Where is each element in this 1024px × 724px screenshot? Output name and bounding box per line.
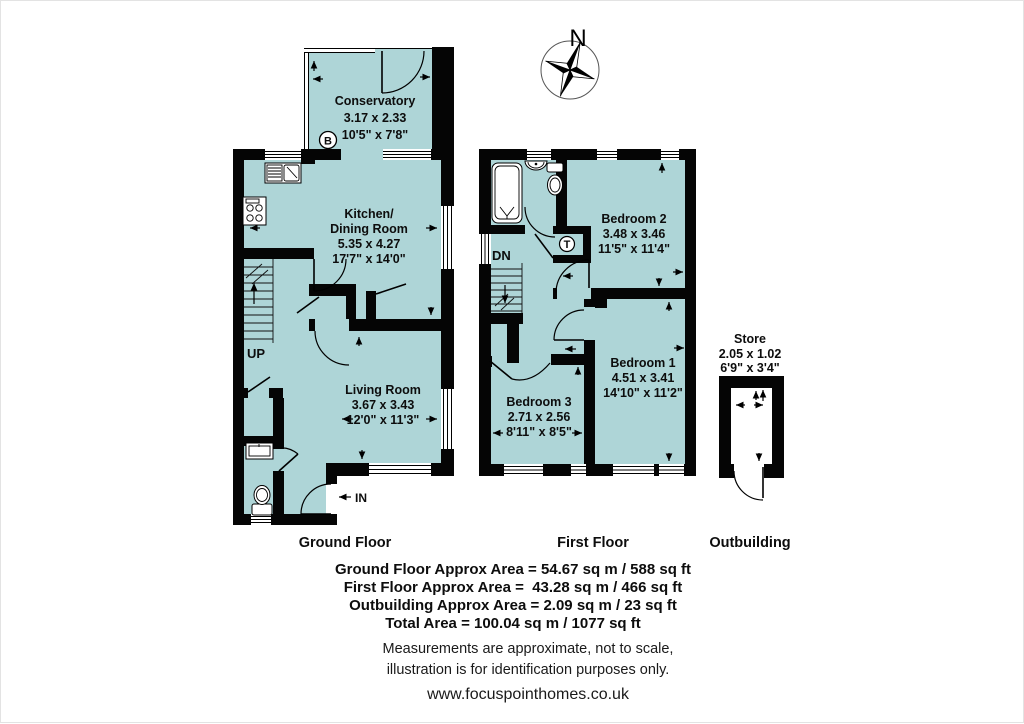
- bedroom2-imperial: 11'5" x 11'4": [598, 242, 670, 256]
- hob: [243, 197, 266, 225]
- living-imperial: 12'0" x 11'3": [347, 413, 420, 427]
- kitchen-name-2: Dining Room: [330, 222, 408, 236]
- kitchen-metric: 5.35 x 4.27: [338, 237, 401, 251]
- disclaimer-line-2: illustration is for identification purpo…: [387, 662, 670, 678]
- dn-label: DN: [492, 248, 511, 263]
- kitchen-sink: [265, 163, 301, 183]
- bathtub: [492, 163, 522, 223]
- boiler-icon: B: [320, 132, 337, 149]
- bedroom2-metric: 3.48 x 3.46: [603, 227, 666, 241]
- area-total: Total Area = 100.04 sq m / 1077 sq ft: [385, 615, 641, 632]
- tank-icon: T: [560, 237, 575, 252]
- conservatory-metric: 3.17 x 2.33: [344, 111, 407, 125]
- bedroom1-name: Bedroom 1: [610, 356, 675, 370]
- compass-icon: N: [536, 25, 605, 105]
- disclaimer: Measurements are approximate, not to sca…: [383, 641, 674, 703]
- first-floor-title: First Floor: [557, 535, 629, 551]
- conservatory-name: Conservatory: [335, 94, 416, 108]
- living-metric: 3.67 x 3.43: [352, 398, 415, 412]
- bedroom3-imperial: 8'11" x 8'5": [506, 425, 572, 439]
- outbuilding-title: Outbuilding: [709, 535, 790, 551]
- kitchen-name-1: Kitchen/: [344, 207, 394, 221]
- conservatory-right-wall: [432, 47, 454, 160]
- bedroom3-name: Bedroom 3: [506, 395, 571, 409]
- store-imperial: 6'9" x 3'4": [720, 361, 780, 375]
- disclaimer-line-1: Measurements are approximate, not to sca…: [383, 641, 674, 657]
- store-metric: 2.05 x 1.02: [719, 347, 782, 361]
- bathroom-toilet: [547, 163, 563, 195]
- conservatory-imperial: 10'5" x 7'8": [342, 128, 409, 142]
- up-label: UP: [247, 346, 265, 361]
- floorplan-page: N B T Conservatory 3.17 x 2.33 10'5" x 7…: [0, 0, 1024, 723]
- in-label: IN: [355, 491, 367, 505]
- area-ground: Ground Floor Approx Area = 54.67 sq m / …: [335, 561, 691, 578]
- living-name: Living Room: [345, 383, 421, 397]
- cloakroom-basin: [246, 443, 273, 459]
- cloakroom-toilet: [252, 486, 272, 516]
- bedroom1-metric: 4.51 x 3.41: [612, 371, 675, 385]
- store-name: Store: [734, 332, 766, 346]
- bedroom2-name: Bedroom 2: [601, 212, 666, 226]
- area-outbuilding: Outbuilding Approx Area = 2.09 sq m / 23…: [349, 597, 677, 614]
- website-text: www.focuspointhomes.co.uk: [426, 686, 630, 703]
- north-label: N: [569, 25, 586, 52]
- ground-floor-title: Ground Floor: [299, 535, 392, 551]
- floorplan-image: N B T Conservatory 3.17 x 2.33 10'5" x 7…: [1, 1, 1024, 724]
- area-first: First Floor Approx Area = 43.28 sq m / 4…: [344, 579, 683, 596]
- kitchen-imperial: 17'7" x 14'0": [332, 252, 405, 266]
- floor-titles: Ground Floor First Floor Outbuilding: [299, 535, 791, 551]
- bedroom1-imperial: 14'10" x 11'2": [603, 386, 683, 400]
- svg-text:T: T: [564, 239, 571, 251]
- area-summary: Ground Floor Approx Area = 54.67 sq m / …: [335, 561, 691, 632]
- svg-text:B: B: [324, 136, 332, 148]
- bedroom3-metric: 2.71 x 2.56: [508, 410, 571, 424]
